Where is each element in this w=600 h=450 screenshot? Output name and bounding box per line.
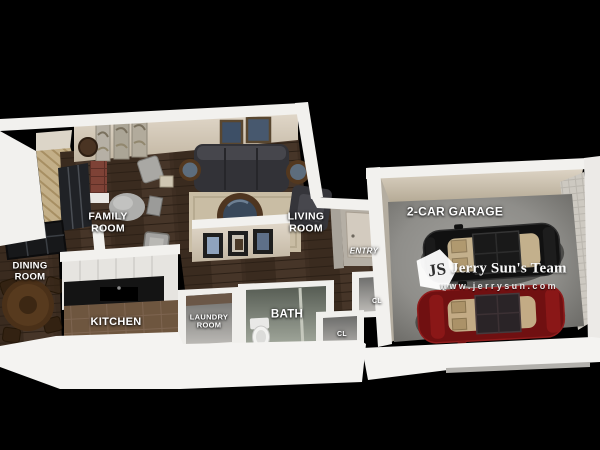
room-label-bath: BATH xyxy=(271,309,303,322)
team-logo-monogram: JS xyxy=(427,259,448,281)
room-label-garage: 2-CAR GARAGE xyxy=(407,205,503,218)
small-table xyxy=(160,176,173,187)
room-label-kitchen: KITCHEN xyxy=(91,316,142,328)
watermark-website: www.jerrysun.com xyxy=(440,281,558,291)
kitchen-area xyxy=(60,244,180,344)
watermark-team-name: Jerry Sun's Team xyxy=(451,261,567,278)
room-label-closet-lower: CL xyxy=(337,331,347,339)
room-label-closet-upper: CL xyxy=(372,298,382,306)
sofa xyxy=(194,144,289,192)
room-label-living-room: LIVINGROOM xyxy=(288,211,325,235)
fireplace xyxy=(87,161,109,203)
room-label-entry: ENTRY xyxy=(350,248,378,257)
bar-cart xyxy=(147,196,163,216)
balcony-slider-door xyxy=(58,163,92,231)
room-label-laundry-room: LAUNDRYROOM xyxy=(190,314,229,331)
room-label-family-room: FAMILYROOM xyxy=(88,211,127,235)
room-label-dining-room: DININGROOM xyxy=(12,261,47,282)
floorplan-canvas: FAMILYROOM LIVINGROOM DININGROOM KITCHEN… xyxy=(0,0,600,450)
gallery-wall xyxy=(192,214,290,262)
front-wall-garage xyxy=(362,337,600,380)
round-mirror xyxy=(79,138,97,156)
